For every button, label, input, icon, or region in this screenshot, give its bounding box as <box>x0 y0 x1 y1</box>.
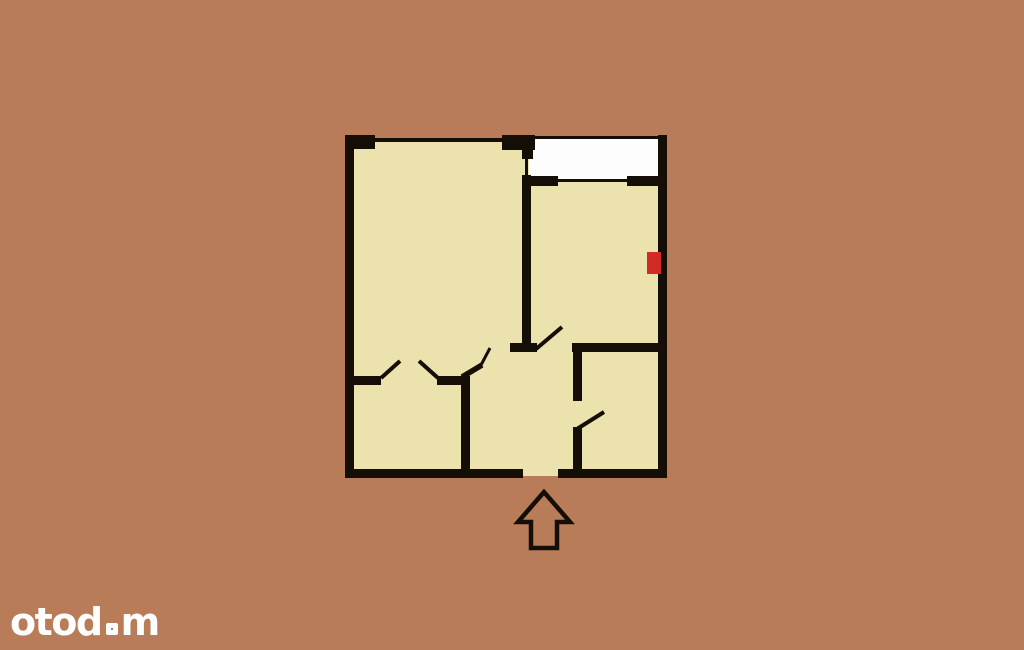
red-marker <box>647 252 661 274</box>
logo-text-prefix: otod <box>10 600 102 644</box>
listing-image: otodm <box>0 0 1024 650</box>
balcony-railing-top <box>525 136 660 139</box>
window-top <box>375 138 502 142</box>
logo-text-suffix: m <box>121 600 159 644</box>
window-balcony <box>558 179 627 182</box>
wall-balcony-bottom-left <box>522 176 558 186</box>
logo-square-icon <box>106 623 118 635</box>
floor-area <box>349 140 659 476</box>
wall-bottom-left-of-entrance <box>345 469 523 478</box>
wall-balcony-bottom-right <box>627 176 658 186</box>
balcony-area <box>529 139 658 180</box>
wall-left <box>345 135 354 478</box>
wall-bottom-right-room-upper <box>573 343 582 401</box>
wall-hall-vertical <box>461 376 470 478</box>
floor-plan <box>0 0 1024 650</box>
otodom-logo: otodm <box>10 604 159 644</box>
wall-right-room-divider <box>572 343 667 352</box>
window-middle-thin <box>525 157 528 178</box>
wall-middle-end-cap <box>510 343 537 352</box>
wall-bottom-left-divider-a <box>345 376 381 385</box>
wall-top-corner <box>345 135 375 149</box>
entrance-arrow-icon <box>518 492 570 548</box>
wall-middle-stub <box>522 135 533 159</box>
wall-right <box>658 135 667 478</box>
wall-middle-vertical <box>522 175 531 347</box>
wall-bottom-right-room-lower <box>573 427 582 478</box>
